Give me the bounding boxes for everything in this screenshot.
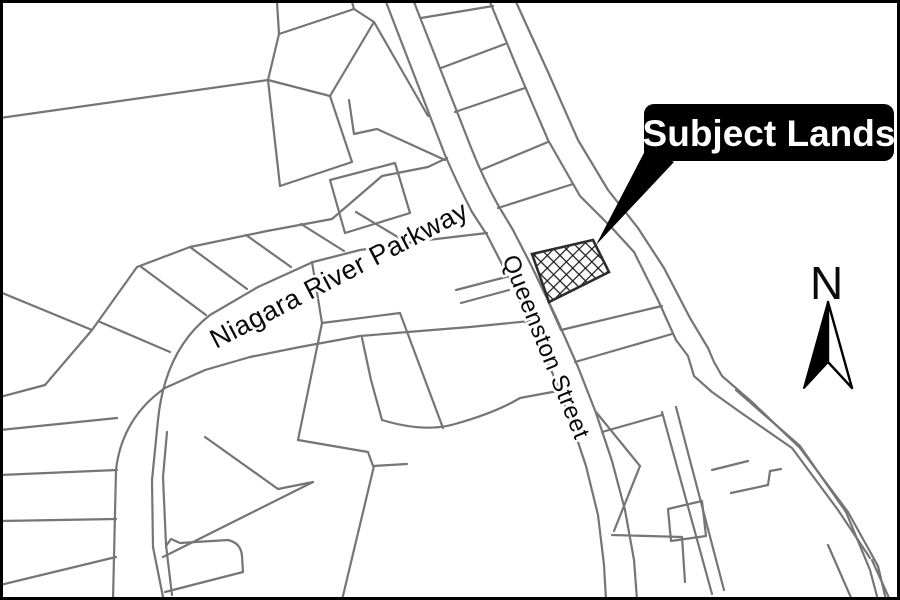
parcel-line: [712, 461, 748, 470]
location-map: Subject Lands Niagara River Parkway Quee…: [0, 0, 900, 600]
parcel-line: [662, 412, 712, 594]
parcel-line: [0, 418, 117, 430]
parcel-line: [382, 390, 563, 428]
parcel-line: [456, 277, 506, 290]
parcel-line: [421, 6, 493, 18]
parcel-line: [330, 22, 374, 96]
parcel-line: [374, 22, 428, 116]
north-arrow-n-label: N: [810, 257, 843, 309]
callout-label: Subject Lands: [643, 113, 896, 154]
parcel-line: [561, 306, 662, 330]
parcel-line: [268, 80, 330, 96]
parcel-line: [165, 539, 243, 592]
parcel-line: [736, 390, 878, 600]
parcel-line: [205, 437, 278, 489]
parcel-line: [100, 322, 170, 352]
parcel-line: [268, 80, 280, 186]
parcel-line: [872, 560, 890, 600]
parcel-line: [342, 466, 374, 600]
parcel-lines: [0, 2, 890, 600]
parcel-line: [354, 9, 374, 22]
parcel-line: [731, 469, 781, 493]
parcel-line: [828, 545, 852, 600]
map-canvas: Subject Lands Niagara River Parkway Quee…: [0, 0, 900, 600]
parcel-line: [0, 519, 116, 521]
parcel-line: [246, 235, 291, 267]
parcel-line: [441, 44, 505, 68]
parcel-line: [0, 557, 116, 585]
parcel-line: [163, 432, 172, 595]
parcel-line: [298, 440, 407, 466]
parcel-line: [386, 2, 606, 600]
parcel-line: [268, 2, 279, 80]
north-arrow-right-half: [828, 302, 852, 388]
parcel-line: [498, 184, 573, 208]
parcel-line: [190, 247, 247, 289]
north-arrow-left-half: [804, 302, 828, 388]
parcel-line: [596, 412, 640, 466]
parcel-line: [461, 290, 509, 303]
parcel-line: [0, 470, 117, 475]
parcel-line: [322, 313, 400, 323]
parcel-line: [301, 224, 344, 251]
parcel-line: [330, 96, 352, 162]
parcel-line: [575, 334, 672, 362]
parcel-line: [682, 537, 685, 582]
parcel-line: [0, 80, 268, 118]
parcel-line: [280, 162, 352, 186]
callout-leader: [596, 149, 674, 245]
parcel-line: [0, 292, 92, 330]
parcel-line: [349, 100, 445, 160]
north-arrow: N: [804, 257, 852, 388]
parcel-line: [0, 385, 45, 397]
parcel-line: [362, 338, 382, 420]
parcel-line: [481, 142, 548, 170]
parcel-line: [279, 2, 354, 34]
parcel-line: [140, 266, 206, 315]
parcel-line: [113, 321, 530, 600]
parcel-line: [455, 88, 525, 112]
parcel-line: [45, 158, 447, 385]
